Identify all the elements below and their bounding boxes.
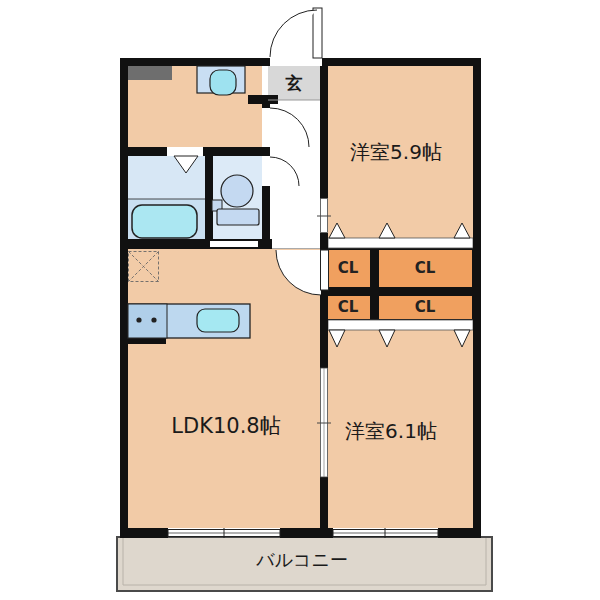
washbasin-bowl [210,70,236,95]
burner-dot [151,317,156,322]
floor-plan: 玄 洋室5.9帖 CL CL CL CL LDK10.8帖 洋室6.1帖 バルコ… [0,0,600,600]
kitchen-sink [197,309,239,332]
ldk-door-leaf [321,250,329,290]
washing-machine-space [128,66,172,80]
ldk-label: LDK10.8帖 [171,416,280,437]
western-room-2-label: 洋室6.1帖 [345,421,437,441]
closet-door-track-top [328,238,473,248]
entrance-label: 玄 [286,75,303,92]
cooktop [128,304,167,338]
entrance-door [270,8,322,58]
burner-dot [136,317,141,322]
toilet-wall-inset [210,241,258,247]
entrance-door-leaf [313,8,322,58]
kitchen-counter [128,304,250,338]
room2-balcony-window [333,528,438,538]
ldk-balcony-window [168,528,280,538]
closet-label: CL [338,300,359,315]
washbasin [197,66,245,95]
closet-door-track-bottom [328,320,473,330]
western-room-1-label: 洋室5.9帖 [350,142,442,162]
ldk-floor [128,249,320,528]
toilet-bowl [221,175,253,207]
closet-label: CL [415,300,436,315]
closet-label: CL [338,261,359,276]
balcony-label: バルコニー [256,551,348,569]
toilet-tank [217,209,259,225]
entrance-opening [270,58,322,66]
entrance-door-arc [270,10,317,57]
closet-label: CL [415,261,436,276]
bathtub [132,205,197,238]
bathroom-door-opening [167,147,203,156]
